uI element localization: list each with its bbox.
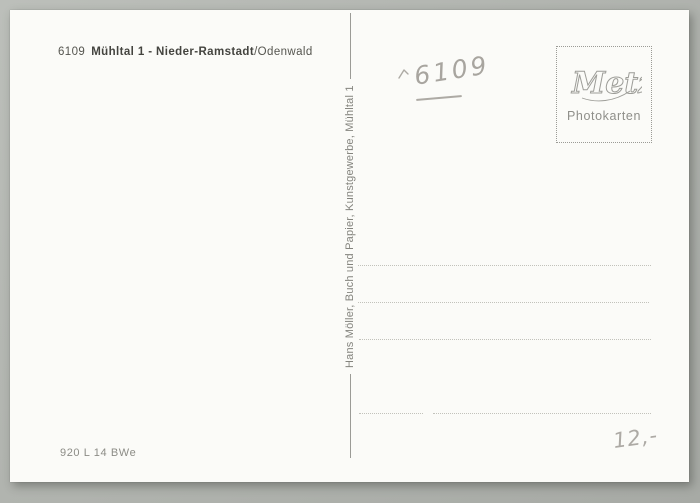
stamp-caption: Photokarten [567,109,641,123]
handwritten-code-group: 6109 [396,54,496,109]
handwritten-underline [416,95,462,101]
title-region: /Odenwald [254,46,313,58]
address-line-1 [358,265,651,266]
handwritten-code: 6109 [412,50,491,90]
address-line-4-right [433,413,651,414]
postcard-title: 6109Mühltal 1 - Nieder-Ramstadt/Odenwald [58,46,313,58]
tick-mark-icon [398,68,410,80]
stamp-box: Metz Photokarten [556,46,652,143]
print-code: 920 L 14 BWe [60,447,136,459]
address-line-4-left [359,413,423,414]
metz-logo-text: Metz [571,66,642,101]
address-line-3 [359,339,651,340]
metz-logo-icon: Metz [566,60,642,106]
address-line-2 [358,302,649,303]
title-town: Mühltal 1 - Nieder-Ramstadt [91,46,254,58]
publisher-divider: Hans Möller, Buch und Papier, Kunstgewer… [342,45,358,458]
postcard-back: 6109Mühltal 1 - Nieder-Ramstadt/Odenwald… [10,10,689,482]
divider-rule-bottom [350,374,351,458]
handwritten-price: 12,- [612,423,660,453]
divider-rule-top [350,13,351,79]
postal-code: 6109 [58,46,85,58]
scanned-postcard-photo: { "card": { "header": { "postal_code": "… [0,0,700,503]
publisher-imprint: Hans Möller, Buch und Papier, Kunstgewer… [344,79,356,374]
